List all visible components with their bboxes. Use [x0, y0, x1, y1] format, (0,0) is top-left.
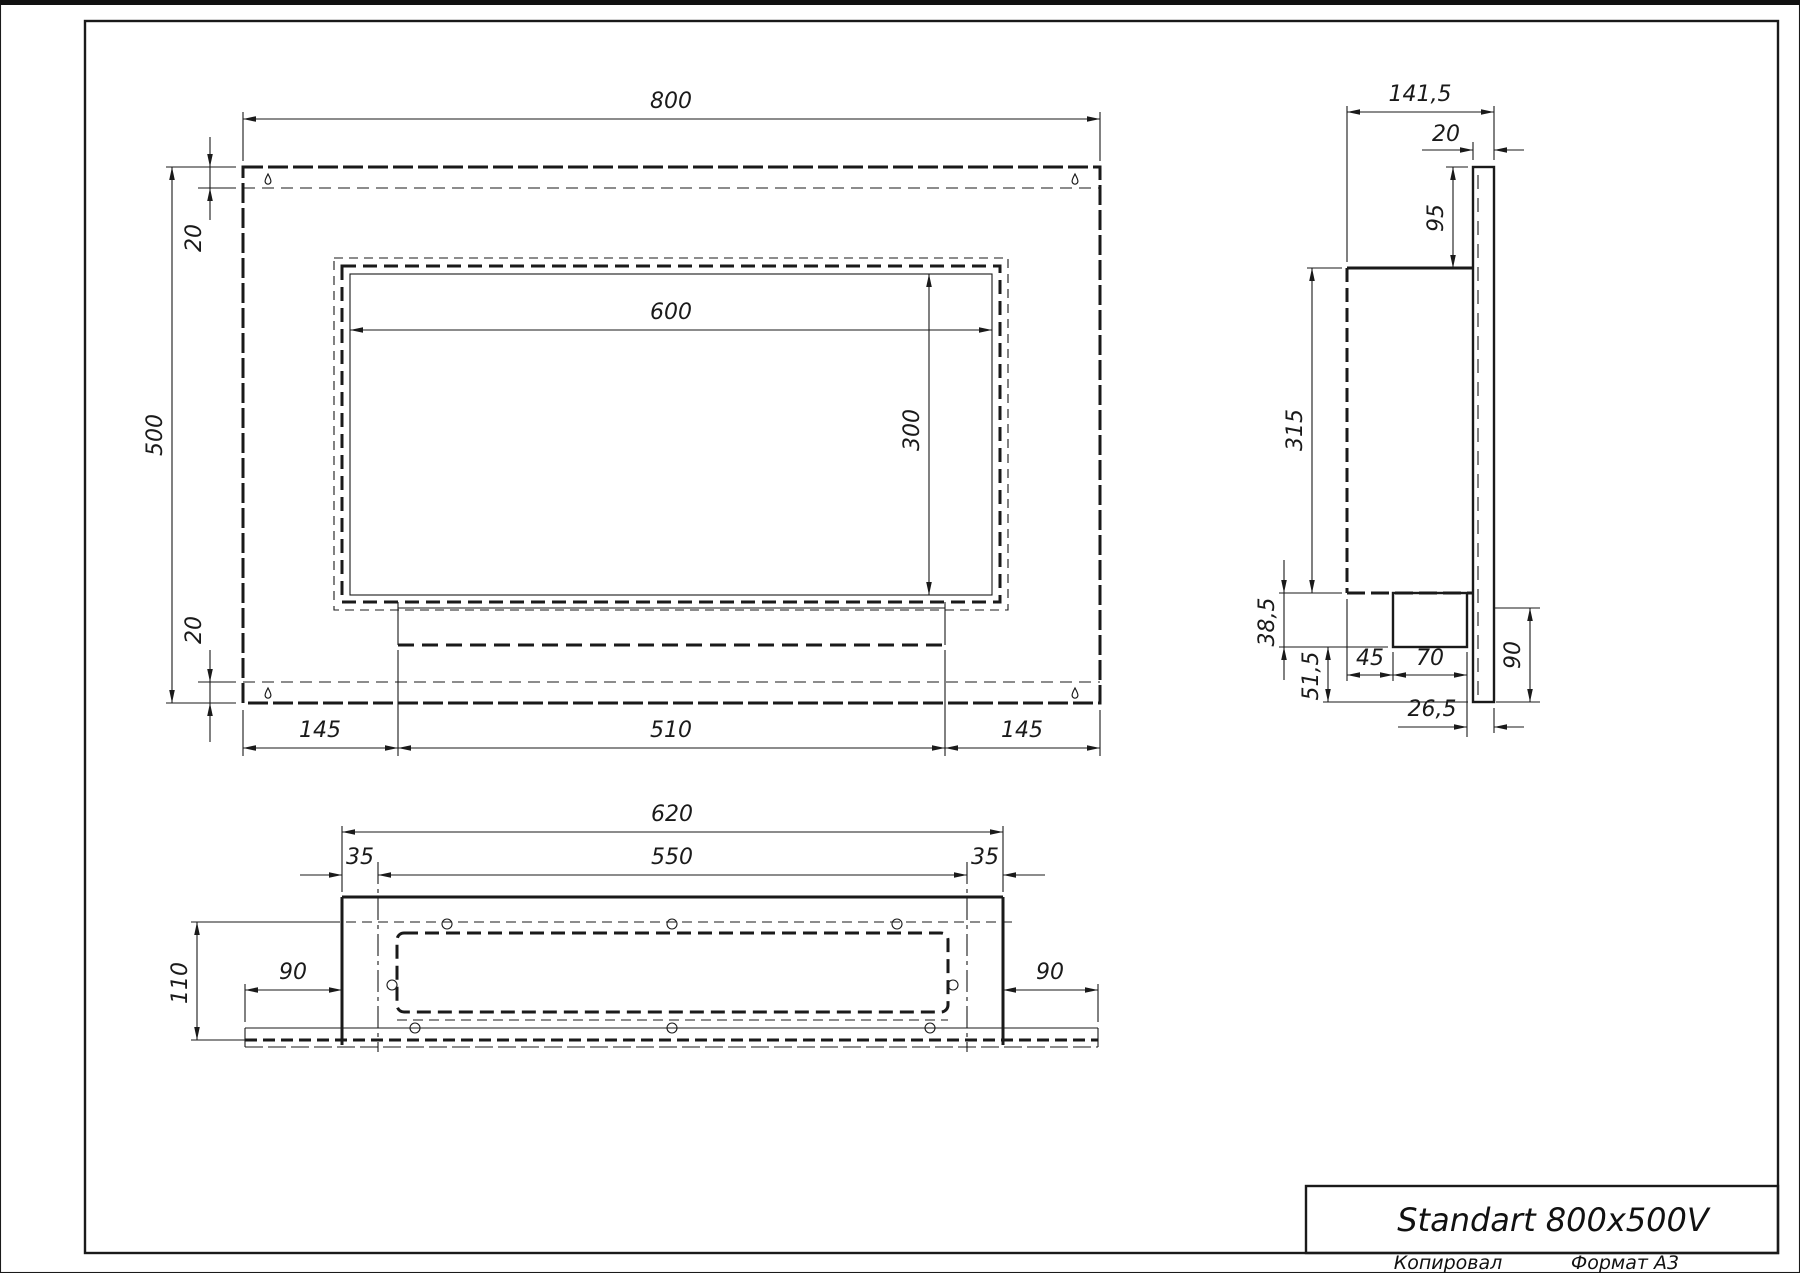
dim-label-body-height: 315 — [1283, 409, 1308, 451]
dim-label-panel-thickness: 20 — [1432, 122, 1460, 147]
dim-window-width: 600 — [350, 300, 992, 330]
dim-label-top-to-body: 95 — [1424, 204, 1449, 232]
keyhole-icon — [265, 174, 1078, 698]
side-tray — [1393, 593, 1467, 647]
dim-label-wing-left: 90 — [279, 960, 307, 985]
front-view: 800 500 20 20 600 — [143, 89, 1100, 756]
drawing-sheet: 800 500 20 20 600 — [0, 0, 1800, 1273]
dim-label-bottom-center: 510 — [650, 718, 692, 743]
bottom-opening — [330, 862, 1015, 1052]
dim-label-rear-gap: 26,5 — [1408, 697, 1457, 722]
dim-front-width: 800 — [243, 89, 1100, 161]
copied-label: Копировал — [1394, 1252, 1503, 1273]
dim-body-height: 315 — [1279, 268, 1342, 593]
dim-label-bottom-right: 145 — [1001, 718, 1043, 743]
title-block: Standart 800x500V Копировал Формат А3 — [1306, 1186, 1778, 1273]
dim-top-to-body: 95 — [1424, 167, 1468, 268]
dim-label-front-bottom-offset: 20 — [182, 616, 207, 644]
front-burner-tray — [398, 602, 945, 645]
dim-label-wing-right: 90 — [1036, 960, 1064, 985]
dim-front-top-offset: 20 — [182, 137, 236, 252]
dim-front-bottom-offset: 20 — [182, 616, 236, 742]
dim-label-below-tray: 51,5 — [1299, 652, 1324, 701]
dim-label-margin-right: 35 — [971, 845, 999, 870]
dim-label-front-width: 800 — [650, 89, 692, 114]
dim-label-margin-left: 35 — [346, 845, 374, 870]
dim-label-bottom-depth: 110 — [168, 962, 193, 1004]
dim-label-side-depth: 141,5 — [1389, 82, 1452, 107]
dim-panel-below: 90 — [1494, 608, 1540, 702]
side-back-panel — [1473, 167, 1494, 702]
screw-hole-icon — [387, 919, 958, 1033]
dim-label-tray-width: 70 — [1416, 646, 1444, 671]
dim-label-front-height: 500 — [143, 414, 168, 456]
side-body — [1347, 268, 1473, 647]
dim-label-front-top-offset: 20 — [182, 224, 207, 252]
format-label: Формат А3 — [1571, 1252, 1679, 1273]
drawing-canvas: 800 500 20 20 600 — [0, 0, 1800, 1273]
dim-label-tray-offset: 45 — [1356, 646, 1384, 671]
dim-label-bottom-left: 145 — [299, 718, 341, 743]
dim-bottom-opening-row: 35 550 35 — [300, 845, 1045, 875]
dim-label-bottom-body-width: 620 — [651, 802, 693, 827]
dim-label-window-width: 600 — [650, 300, 692, 325]
dim-label-window-height: 300 — [900, 409, 925, 451]
dim-label-tray-depth: 38,5 — [1255, 598, 1280, 647]
front-outline — [243, 167, 1100, 703]
drawing-title: Standart 800x500V — [1397, 1201, 1711, 1239]
bottom-view: 620 35 550 35 110 90 90 — [168, 802, 1098, 1052]
side-view: 141,5 20 95 315 38,5 — [1255, 82, 1540, 737]
dim-label-opening-width: 550 — [651, 845, 693, 870]
dim-front-bottom-row: 145 510 145 — [243, 650, 1100, 756]
dim-window-height: 300 — [900, 274, 929, 595]
bottom-flange — [245, 1028, 1098, 1047]
dim-label-panel-below: 90 — [1501, 641, 1526, 669]
dim-panel-thickness: 20 — [1422, 122, 1524, 160]
